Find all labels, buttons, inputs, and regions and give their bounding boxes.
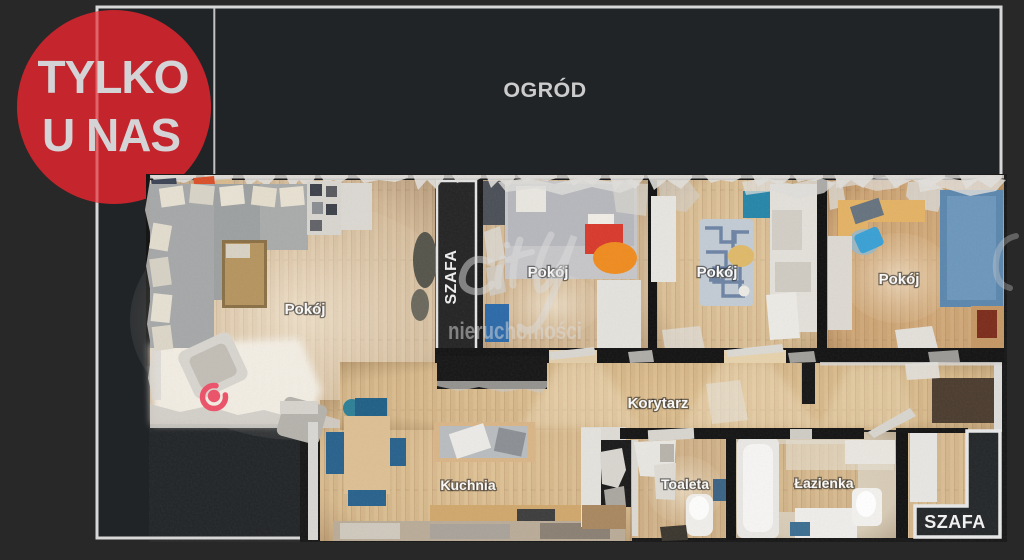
svg-text:U NAS: U NAS — [42, 109, 180, 161]
svg-text:TYLKO: TYLKO — [38, 51, 189, 103]
svg-text:OGRÓD: OGRÓD — [503, 77, 586, 102]
svg-text:nieruchomości: nieruchomości — [448, 318, 582, 345]
